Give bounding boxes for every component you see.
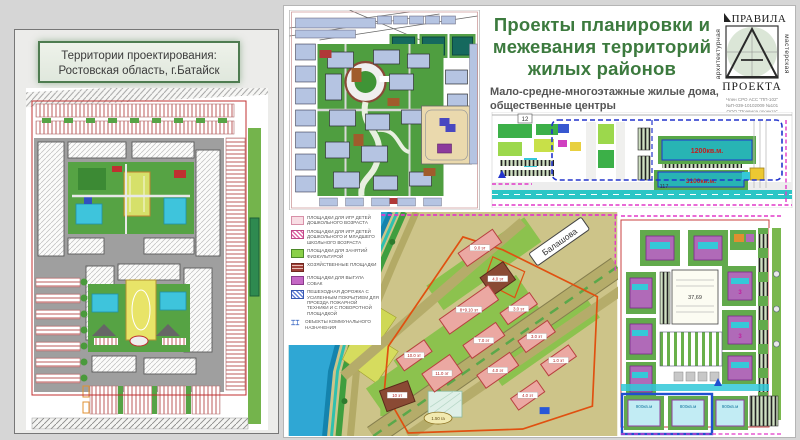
- area-note: 1.50 га: [431, 416, 445, 421]
- logo-word-top: ПРАВИЛА: [732, 13, 787, 25]
- page-subtitle-line1: Мало-средне-многоэтажные жилые дома,: [490, 86, 720, 100]
- legend-label: ПЛОЩАДКИ ДЛЯ ЗАНЯТИЙ ФИЗКУЛЬТУРОЙ: [307, 248, 379, 259]
- legend-swatch-playground-icon: [291, 216, 304, 225]
- legend-item: ХОЗЯЙСТВЕННЫЕ ПЛОЩАДКИ: [291, 262, 379, 272]
- territory-title-box: Территории проектирования: Ростовская об…: [38, 41, 240, 83]
- page-title-line1: Проекты планировки и: [488, 14, 716, 36]
- linear-district-plan: 1200кв.м. 3100кв.м. 12 117: [491, 112, 793, 208]
- building-label: 4.0 эт: [522, 393, 533, 398]
- building-label: 3.0 эт: [513, 306, 524, 311]
- logo-side-left: архитектурная: [715, 29, 722, 80]
- page-title-line3: жилых районов: [488, 58, 716, 80]
- building-label: 4.0 эт: [492, 276, 503, 281]
- building-label: 8+9.10 эт: [460, 307, 478, 312]
- legend-item: ПЛОЩАДКИ ДЛЯ ИГР ДЕТЕЙ ДОШКОЛЬНОГО ВОЗРА…: [291, 215, 379, 226]
- parcel-area-label: 900кв.м: [636, 404, 653, 409]
- logo-triangle-icon: [724, 13, 731, 22]
- legend-label: ПЕШЕХОДНАЯ ДОРОЖКА С УСИЛЕННЫМ ПОКРЫТИЕМ…: [307, 289, 379, 316]
- logo-word-bottom: ПРОЕКТА: [722, 81, 782, 92]
- building-label: 3.0 эт: [531, 334, 542, 339]
- left-slide-panel: Территории проектирования: Ростовская об…: [14, 29, 279, 434]
- territory-title-line1: Территории проектирования:: [40, 49, 238, 64]
- page-subtitle: Мало-средне-многоэтажные жилые дома, общ…: [490, 86, 720, 113]
- company-logo: ПРАВИЛА архитектурная мастерская ПРОЕКТА…: [712, 8, 792, 115]
- plan-legend: ПЛОЩАДКИ ДЛЯ ИГР ДЕТЕЙ ДОШКОЛЬНОГО ВОЗРА…: [288, 212, 381, 345]
- legend-item: ПЕШЕХОДНАЯ ДОРОЖКА С УСИЛЕННЫМ ПОКРЫТИЕМ…: [291, 289, 379, 316]
- building-label: 7.0 эт: [478, 338, 489, 343]
- area-label-2: 3100кв.м.: [686, 178, 716, 185]
- area-label-1: 1200кв.м.: [691, 148, 724, 155]
- legend-label: ХОЗЯЙСТВЕННЫЕ ПЛОЩАДКИ: [307, 262, 376, 267]
- logo-side-right: мастерская: [783, 34, 790, 74]
- legend-item: ⌶⌶ ОБЪЕКТЫ КОММУНАЛЬНОГО НАЗНАЧЕНИЯ: [291, 319, 379, 330]
- legend-swatch-dogs-icon: [291, 276, 304, 285]
- parcel-area-label: 900кв.м: [722, 404, 739, 409]
- center-note: 37,69: [688, 295, 702, 301]
- right-poster-panel: Проекты планировки и межевания территори…: [283, 5, 796, 438]
- legend-item: ПЛОЩАДКИ ДЛЯ ВЫГУЛА СОБАК: [291, 275, 379, 286]
- territory-title-line2: Ростовская область, г.Батайск: [40, 64, 238, 79]
- building-label: 1.0 эт: [553, 358, 564, 363]
- building-label: 10.0 эт: [407, 353, 421, 358]
- building-label: 4.0 эт: [492, 368, 503, 373]
- building-label: 10 эт: [392, 393, 402, 398]
- courtyard-plan: [288, 10, 481, 210]
- page-subtitle-line2: общественные центры: [490, 100, 720, 114]
- block-plan: 3 3 37,69 900кв.м 800кв.м 900кв.м: [618, 214, 784, 437]
- logo-emblem: ПРАВИЛА архитектурная мастерская ПРОЕКТА: [712, 8, 792, 92]
- legend-swatch-communal-icon: ⌶⌶: [291, 320, 302, 327]
- legend-label: ПЛОЩАДКИ ДЛЯ ИГР ДЕТЕЙ ДОШКОЛЬНОГО ВОЗРА…: [307, 215, 379, 226]
- legend-label: ПЛОЩАДКИ ДЛЯ ВЫГУЛА СОБАК: [307, 275, 379, 286]
- left-site-plan: [26, 88, 268, 430]
- building-label: 9.0 эт: [474, 246, 485, 251]
- block-number: 12: [522, 117, 529, 123]
- legend-swatch-school-playground-icon: [291, 230, 304, 239]
- legend-swatch-utility-icon: [291, 263, 304, 272]
- legend-label: ОБЪЕКТЫ КОММУНАЛЬНОГО НАЗНАЧЕНИЯ: [305, 319, 379, 330]
- legend-swatch-fire-lane-icon: [291, 290, 304, 299]
- page-title-line2: межевания территорий: [488, 36, 716, 58]
- building-label: 11.0 эт: [435, 371, 448, 376]
- legend-label: ПЛОЩАДКИ ДЛЯ ИГР ДЕТЕЙ ДОШКОЛЬНОГО И МЛА…: [307, 229, 379, 245]
- legend-item: ПЛОЩАДКИ ДЛЯ ЗАНЯТИЙ ФИЗКУЛЬТУРОЙ: [291, 248, 379, 259]
- parcel-area-label: 800кв.м: [680, 404, 697, 409]
- legend-swatch-sports-icon: [291, 249, 304, 258]
- page-title: Проекты планировки и межевания территори…: [488, 14, 716, 80]
- legend-item: ПЛОЩАДКИ ДЛЯ ИГР ДЕТЕЙ ДОШКОЛЬНОГО И МЛА…: [291, 229, 379, 245]
- street-number: 117: [660, 184, 669, 190]
